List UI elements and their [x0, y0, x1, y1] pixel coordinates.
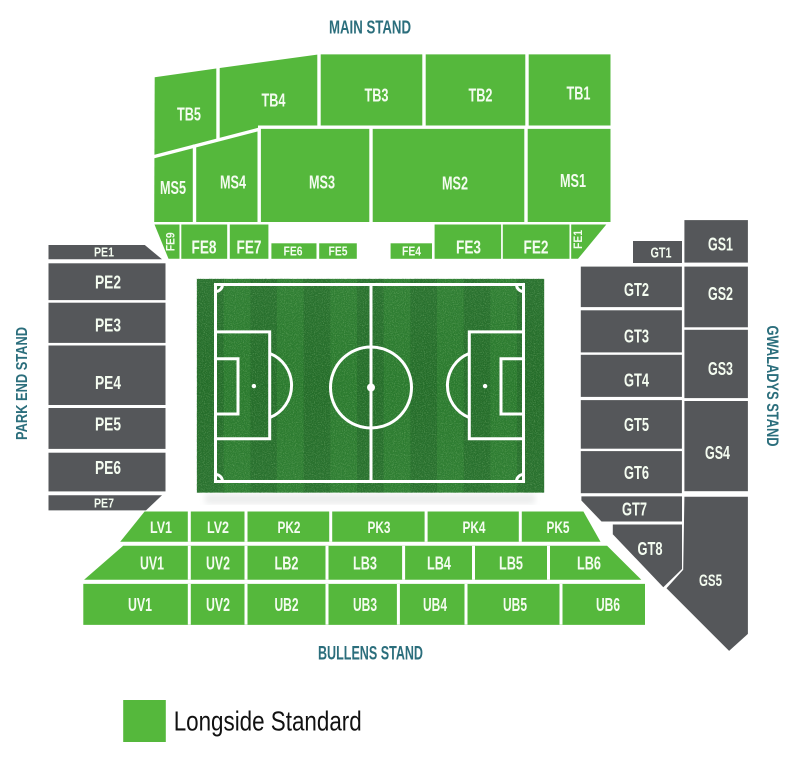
svg-text:PE1: PE1 [94, 244, 114, 259]
svg-text:GS2: GS2 [708, 284, 733, 304]
svg-text:TB4: TB4 [262, 91, 286, 111]
svg-text:UB2: UB2 [275, 595, 299, 615]
svg-text:TB5: TB5 [177, 105, 201, 125]
svg-text:GT8: GT8 [638, 539, 663, 559]
svg-text:FE8: FE8 [192, 238, 217, 258]
svg-text:PK3: PK3 [368, 518, 391, 537]
svg-text:GT3: GT3 [624, 327, 649, 347]
svg-text:GT5: GT5 [624, 415, 649, 435]
svg-text:LV2: LV2 [207, 518, 229, 537]
svg-text:UV1: UV1 [128, 595, 152, 615]
svg-text:PE5: PE5 [95, 415, 121, 435]
svg-text:PE3: PE3 [95, 316, 121, 336]
svg-text:FE9: FE9 [166, 232, 178, 251]
svg-text:MS3: MS3 [309, 172, 335, 192]
svg-text:PARK END STAND: PARK END STAND [14, 327, 31, 440]
svg-text:UV2: UV2 [206, 554, 230, 574]
svg-text:LB5: LB5 [499, 554, 523, 574]
svg-text:FE4: FE4 [402, 245, 421, 259]
svg-text:PE4: PE4 [95, 373, 121, 393]
svg-text:TB2: TB2 [469, 86, 493, 106]
svg-text:FE1: FE1 [573, 229, 585, 249]
svg-text:UB6: UB6 [596, 595, 620, 615]
svg-text:LV1: LV1 [150, 518, 172, 537]
svg-text:GT2: GT2 [624, 280, 649, 300]
svg-text:MS4: MS4 [220, 172, 246, 192]
svg-text:GT1: GT1 [651, 246, 672, 262]
svg-text:PE6: PE6 [95, 458, 121, 478]
svg-text:PK5: PK5 [547, 518, 570, 537]
svg-text:GS4: GS4 [705, 443, 730, 463]
svg-text:GT7: GT7 [622, 500, 647, 520]
svg-text:FE3: FE3 [456, 238, 481, 258]
svg-text:LB4: LB4 [427, 554, 451, 574]
svg-text:Longside Standard: Longside Standard [174, 706, 362, 737]
svg-text:LB3: LB3 [353, 554, 377, 574]
svg-text:UV2: UV2 [206, 595, 230, 615]
svg-text:PK4: PK4 [463, 518, 486, 537]
svg-text:UB4: UB4 [423, 595, 447, 615]
svg-text:TB3: TB3 [365, 86, 389, 106]
svg-text:FE7: FE7 [237, 238, 262, 258]
svg-text:BULLENS STAND: BULLENS STAND [318, 643, 423, 664]
svg-text:UB5: UB5 [503, 595, 527, 615]
svg-text:MAIN STAND: MAIN STAND [329, 17, 411, 38]
svg-text:FE2: FE2 [524, 238, 549, 258]
svg-text:LB6: LB6 [577, 554, 601, 574]
svg-text:GS1: GS1 [708, 235, 733, 255]
svg-text:PE7: PE7 [94, 496, 114, 511]
svg-text:MS1: MS1 [560, 171, 586, 191]
svg-text:GS5: GS5 [699, 571, 722, 590]
svg-text:PK2: PK2 [278, 518, 301, 537]
svg-text:MS2: MS2 [442, 174, 468, 194]
svg-text:LB2: LB2 [275, 554, 299, 574]
svg-text:UV1: UV1 [140, 554, 164, 574]
svg-text:GT6: GT6 [624, 463, 649, 483]
svg-text:PE2: PE2 [95, 273, 121, 293]
svg-text:UB3: UB3 [353, 595, 377, 615]
svg-text:GWALADYS STAND: GWALADYS STAND [763, 326, 781, 447]
svg-text:MS5: MS5 [160, 178, 186, 198]
svg-text:GT4: GT4 [624, 371, 649, 391]
svg-text:FE6: FE6 [284, 245, 303, 259]
svg-text:GS3: GS3 [708, 359, 733, 379]
svg-text:FE5: FE5 [329, 245, 348, 259]
svg-text:TB1: TB1 [567, 84, 591, 104]
